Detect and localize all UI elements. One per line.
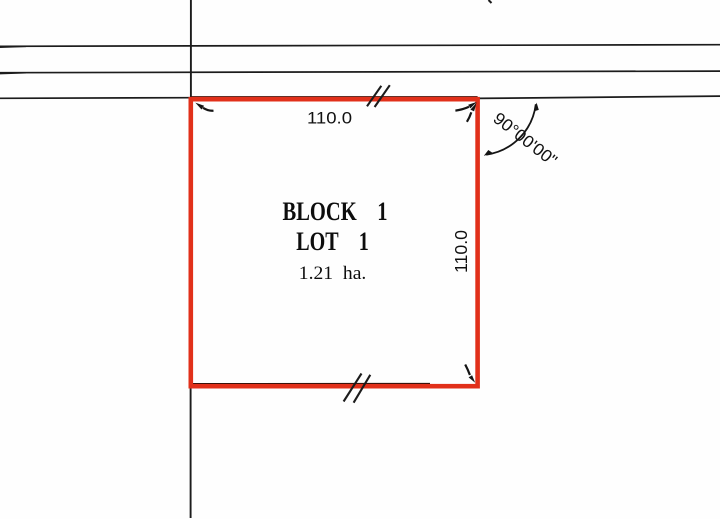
svg-text:BLOCK 1: BLOCK 1 — [283, 196, 388, 226]
svg-text:1.21 ha.: 1.21 ha. — [299, 264, 367, 284]
svg-text:110.0: 110.0 — [451, 230, 471, 273]
svg-text:110.0: 110.0 — [307, 109, 352, 128]
svg-text:LOT 1: LOT 1 — [296, 226, 369, 256]
